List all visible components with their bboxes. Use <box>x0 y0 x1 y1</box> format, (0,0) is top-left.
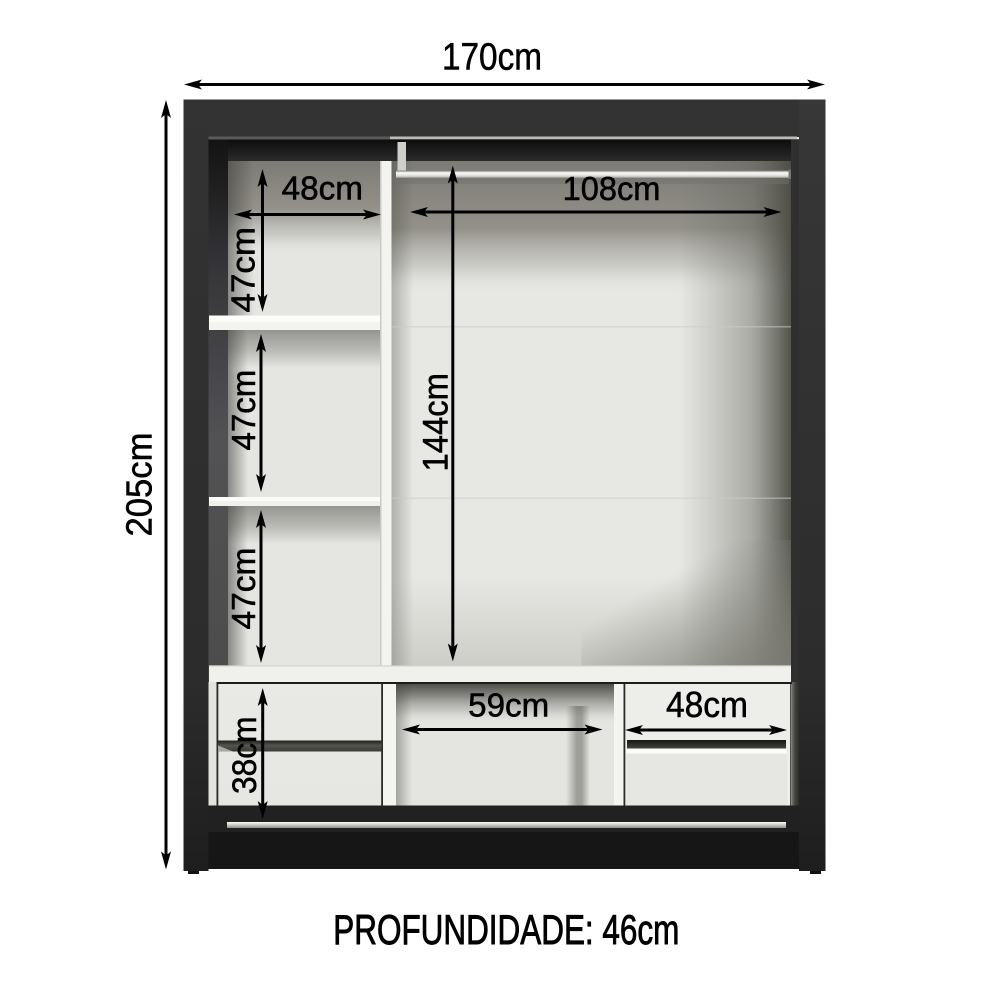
svg-text:205cm: 205cm <box>119 433 160 537</box>
svg-text:PROFUNDIDADE: 46cm: PROFUNDIDADE: 46cm <box>333 906 679 953</box>
svg-text:48cm: 48cm <box>666 684 748 725</box>
svg-text:170cm: 170cm <box>442 36 542 78</box>
svg-text:38cm: 38cm <box>226 717 264 795</box>
svg-text:108cm: 108cm <box>563 170 661 207</box>
svg-text:144cm: 144cm <box>416 373 456 471</box>
svg-text:47cm: 47cm <box>225 370 262 451</box>
svg-text:59cm: 59cm <box>468 686 549 723</box>
svg-text:48cm: 48cm <box>282 170 363 207</box>
svg-text:47cm: 47cm <box>225 227 262 313</box>
svg-text:47cm: 47cm <box>225 548 262 630</box>
